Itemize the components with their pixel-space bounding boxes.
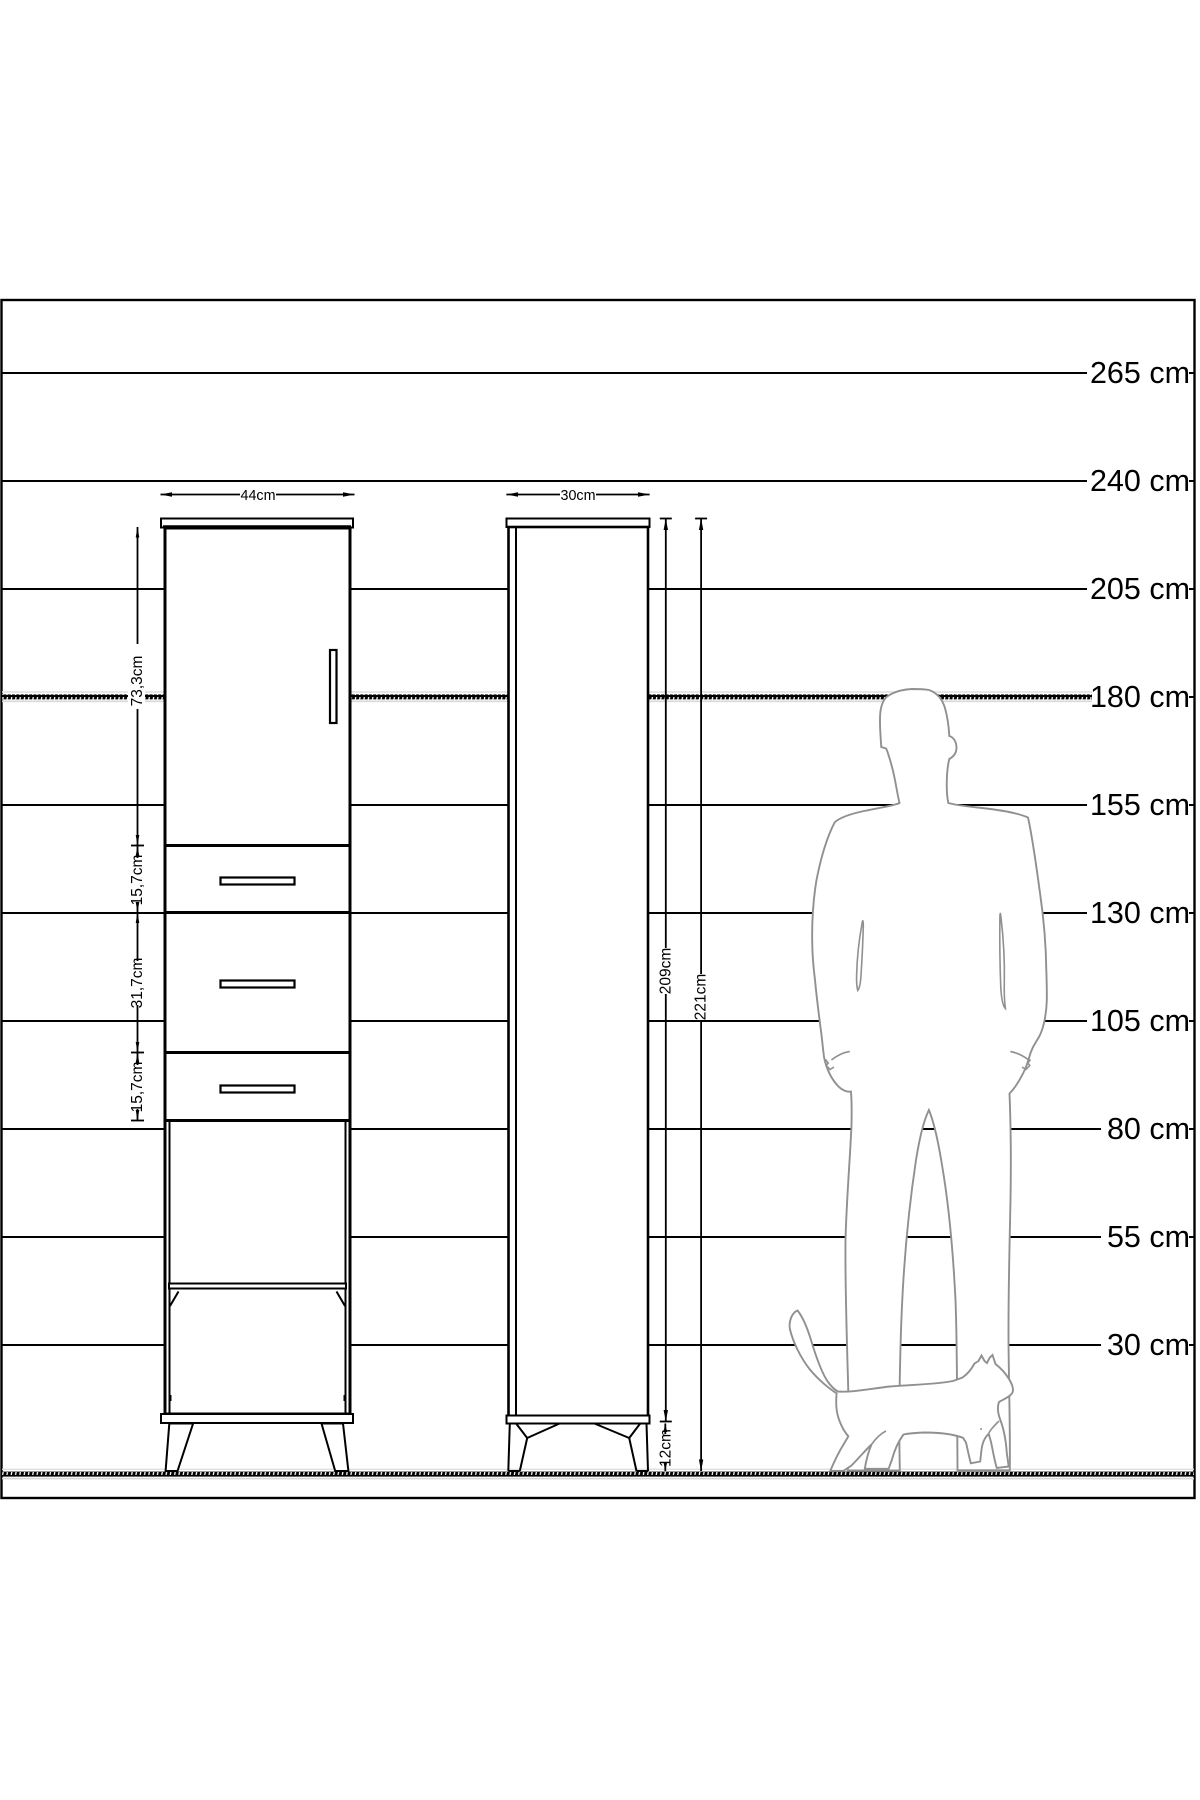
svg-text:180 cm: 180 cm (1090, 680, 1190, 714)
svg-text:209cm: 209cm (657, 948, 674, 995)
svg-text:221cm: 221cm (693, 974, 710, 1021)
svg-text:240 cm: 240 cm (1090, 464, 1190, 498)
svg-text:155 cm: 155 cm (1090, 788, 1190, 822)
svg-text:265 cm: 265 cm (1090, 356, 1190, 390)
svg-text:30cm: 30cm (561, 488, 596, 504)
svg-text:73,3cm: 73,3cm (129, 656, 146, 707)
svg-text:30 cm: 30 cm (1107, 1328, 1190, 1362)
svg-text:31,7cm: 31,7cm (129, 958, 146, 1009)
svg-text:15,7cm: 15,7cm (129, 855, 146, 906)
svg-text:80 cm: 80 cm (1107, 1112, 1190, 1146)
svg-text:15,7cm: 15,7cm (129, 1062, 146, 1113)
svg-text:105 cm: 105 cm (1090, 1004, 1190, 1038)
svg-text:130 cm: 130 cm (1090, 896, 1190, 930)
svg-text:55 cm: 55 cm (1107, 1220, 1190, 1254)
svg-text:205 cm: 205 cm (1090, 572, 1190, 606)
svg-text:12cm: 12cm (658, 1429, 675, 1467)
svg-text:44cm: 44cm (241, 488, 276, 504)
